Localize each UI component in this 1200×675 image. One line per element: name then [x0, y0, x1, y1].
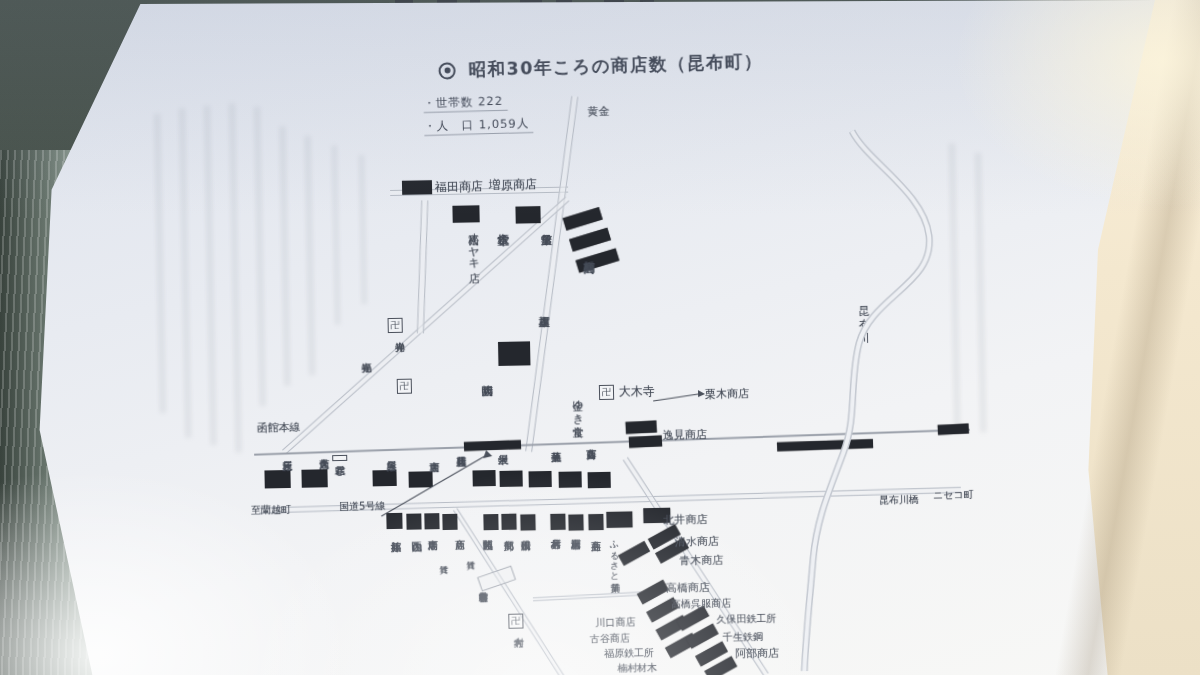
river-path	[794, 130, 938, 671]
photo-of-book-page: 昭和30年ころの商店数（昆布町） ・世帯数 222 ・人 口 1,059人	[0, 0, 1200, 675]
arrow-from-oshima-head	[483, 450, 492, 458]
arrow-to-kuriki-head	[698, 390, 705, 397]
river-path-inner	[794, 130, 938, 671]
map-vector-layer	[0, 0, 1200, 675]
arrow-from-oshima	[380, 454, 489, 516]
arrow-to-kuriki	[653, 394, 698, 401]
map-content: 昭和30年ころの商店数（昆布町） ・世帯数 222 ・人 口 1,059人	[0, 0, 1200, 675]
